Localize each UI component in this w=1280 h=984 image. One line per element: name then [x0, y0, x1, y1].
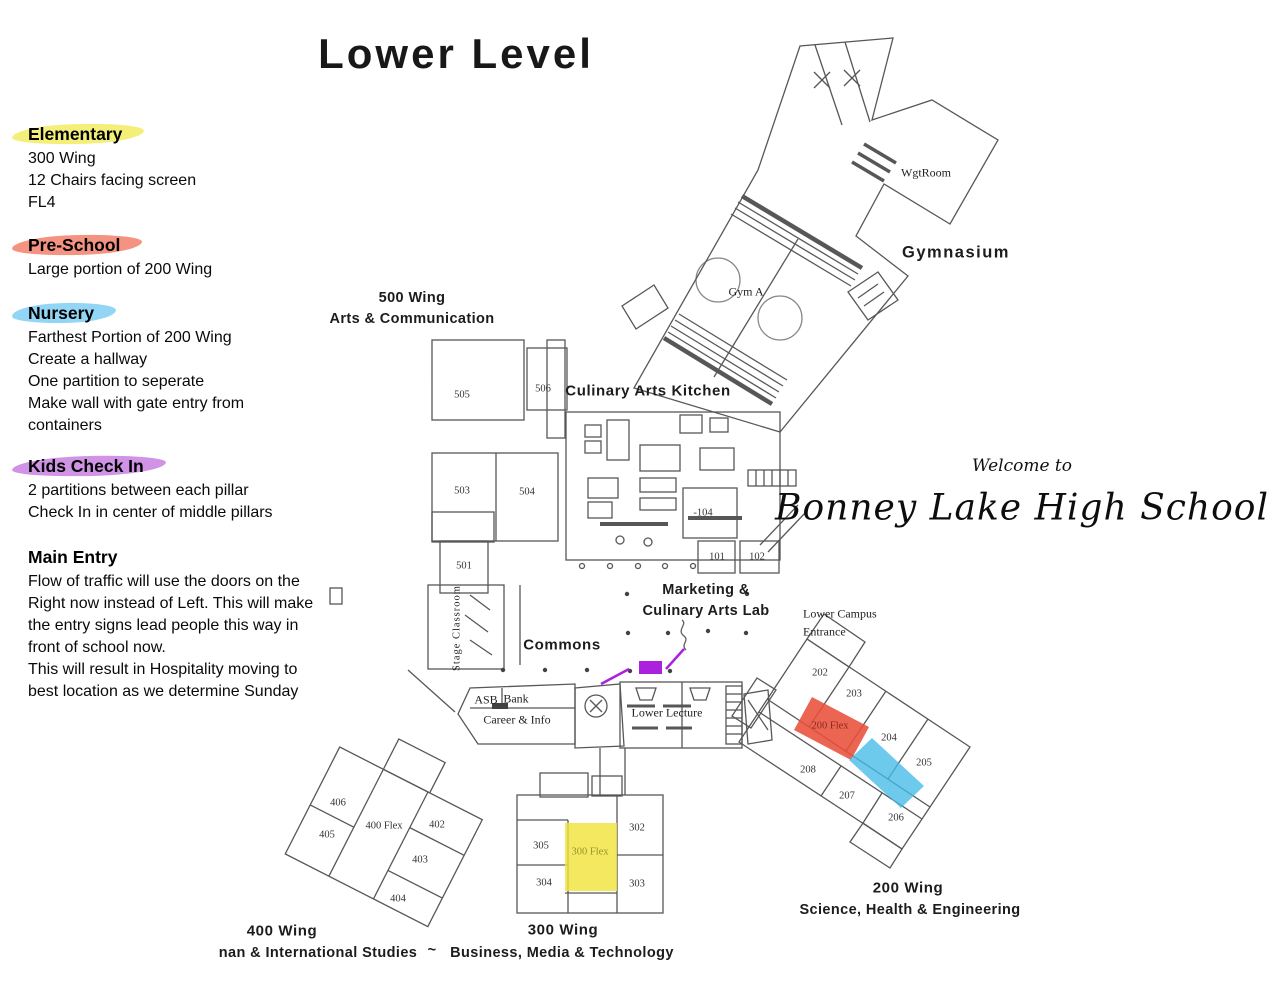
page-title: Lower Level [318, 30, 594, 78]
room-303: 303 [629, 879, 645, 890]
label-marketing: Marketing & [662, 582, 749, 598]
wing-500-outline [330, 340, 567, 712]
room-206: 206 [888, 813, 904, 824]
room-400-flex: 400 Flex [365, 821, 402, 832]
label-500-wing-sub: Arts & Communication [329, 311, 494, 327]
label-asb: ASB [474, 693, 497, 708]
checkin-pointer-line-right [666, 649, 684, 669]
annotation-nursery: Nursery Farthest Portion of 200 Wing Cre… [28, 303, 244, 437]
entrance-squiggle [681, 620, 686, 650]
room-406: 406 [330, 798, 346, 809]
floor-plan-page: Lower Level Elementary 300 Wing 12 Chair… [0, 0, 1280, 984]
annotation-line: Check In in center of middle pillars [28, 502, 273, 524]
annotation-line: the entry signs lead people this way in [28, 615, 313, 637]
label-marketing-sub: Culinary Arts Lab [642, 603, 769, 619]
annotation-elementary: Elementary 300 Wing 12 Chairs facing scr… [28, 124, 196, 214]
kitchen-block-outline [566, 412, 806, 573]
annotation-line: Make wall with gate entry from [28, 393, 244, 415]
annotation-heading: Main Entry [28, 547, 117, 568]
room-505: 505 [454, 390, 470, 401]
annotation-kids-check-in: Kids Check In 2 partitions between each … [28, 456, 273, 524]
room-501: 501 [456, 561, 472, 572]
room-300-flex: 300 Flex [571, 847, 608, 858]
annotation-line: best location as we determine Sunday [28, 681, 313, 703]
room-207: 207 [839, 791, 855, 802]
annotation-line: Farthest Portion of 200 Wing [28, 327, 244, 349]
room-102: 102 [749, 552, 765, 563]
label-bank: Bank [503, 692, 528, 707]
highlight-checkin-purple [639, 661, 662, 674]
room-205: 205 [916, 758, 932, 769]
label-200-wing: 200 Wing [873, 880, 944, 897]
annotation-heading: Elementary [28, 124, 122, 145]
annotation-heading: Nursery [28, 303, 94, 324]
annotation-line: 300 Wing [28, 148, 196, 170]
annotation-main-entry: Main Entry Flow of traffic will use the … [28, 547, 313, 703]
annotation-line: Large portion of 200 Wing [28, 259, 212, 281]
highlight-200hall-blue [849, 738, 924, 808]
annotation-line: 2 partitions between each pillar [28, 480, 273, 502]
annotation-line: Flow of traffic will use the doors on th… [28, 571, 313, 593]
annotation-heading: Pre-School [28, 235, 120, 256]
label-lower-campus: Lower Campus [803, 607, 877, 622]
welcome-to-text: Welcome to [972, 456, 1072, 476]
label-300-wing-sub: Business, Media & Technology [450, 945, 674, 961]
label-200-wing-sub: Science, Health & Engineering [799, 902, 1020, 918]
label-lower-campus-sub: Entrance [803, 625, 846, 640]
room-503: 503 [454, 486, 470, 497]
room-404: 404 [390, 894, 406, 905]
label-lower-lecture: Lower Lecture [632, 706, 703, 721]
label-500-wing: 500 Wing [379, 290, 446, 306]
room-104: -104 [693, 508, 712, 519]
room-302: 302 [629, 823, 645, 834]
room-101: 101 [709, 552, 725, 563]
label-300-wing: 300 Wing [528, 922, 599, 939]
label-stage-classroom: Stage Classroom [452, 585, 463, 671]
label-commons: Commons [523, 637, 601, 654]
annotation-preschool: Pre-School Large portion of 200 Wing [28, 235, 212, 281]
room-202: 202 [812, 668, 828, 679]
label-divider-dash: ~ [428, 942, 437, 958]
label-400-wing-sub: nan & International Studies [219, 945, 418, 961]
annotation-line: front of school now. [28, 637, 313, 659]
label-gym-a: Gym A [728, 285, 763, 300]
label-wgtroom: WgtRoom [901, 166, 951, 181]
room-200-flex: 200 Flex [811, 721, 848, 732]
room-403: 403 [412, 855, 428, 866]
label-culinary-kitchen: Culinary Arts Kitchen [565, 383, 730, 400]
label-career-info: Career & Info [483, 713, 550, 728]
annotation-line: FL4 [28, 192, 196, 214]
label-gymnasium: Gymnasium [902, 244, 1010, 263]
room-204: 204 [881, 733, 897, 744]
annotation-line: containers [28, 415, 244, 437]
school-name-text: Bonney Lake High School [775, 488, 1269, 529]
room-402: 402 [429, 820, 445, 831]
annotation-line: This will result in Hospitality moving t… [28, 659, 313, 681]
room-305: 305 [533, 841, 549, 852]
room-405: 405 [319, 830, 335, 841]
room-208: 208 [800, 765, 816, 776]
gym-complex-outline [622, 38, 998, 432]
room-504: 504 [519, 487, 535, 498]
label-400-wing: 400 Wing [247, 923, 318, 940]
room-304: 304 [536, 878, 552, 889]
annotation-line: Create a hallway [28, 349, 244, 371]
room-506: 506 [535, 384, 551, 395]
annotation-line: 12 Chairs facing screen [28, 170, 196, 192]
room-203: 203 [846, 689, 862, 700]
annotation-heading: Kids Check In [28, 456, 144, 477]
annotation-line: Right now instead of Left. This will mak… [28, 593, 313, 615]
annotation-line: One partition to seperate [28, 371, 244, 393]
